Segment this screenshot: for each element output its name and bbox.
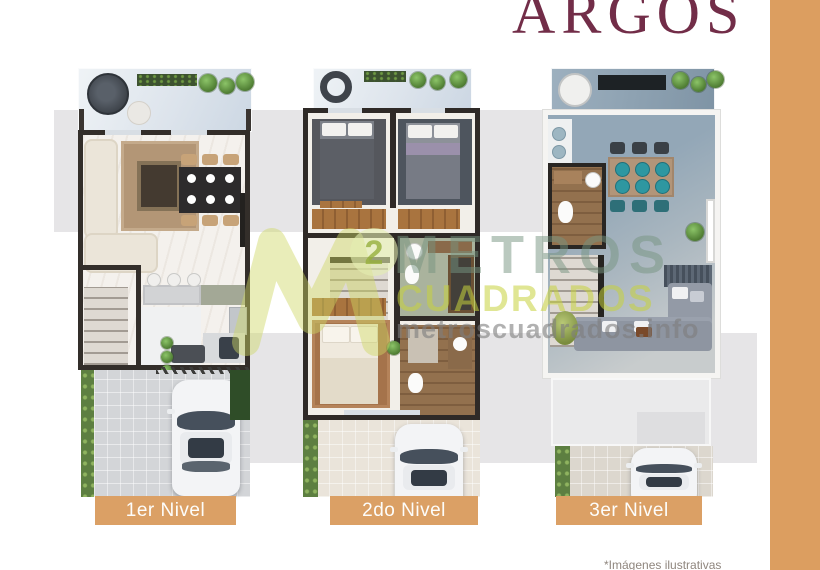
flyer-canvas: 2 METROS CUADRADOS metroscuadrados.info … <box>0 0 820 570</box>
potted-plant <box>199 74 217 92</box>
plate <box>187 195 196 204</box>
dining-chair <box>181 215 197 226</box>
potted-plant <box>691 77 706 92</box>
pillow <box>408 125 432 138</box>
media-wall <box>240 193 245 247</box>
dining-chair <box>223 215 239 226</box>
vanity <box>554 171 582 184</box>
chair <box>610 200 625 212</box>
project-title: ARGOS <box>512 0 748 48</box>
plate <box>615 162 630 177</box>
car-sunroof <box>411 470 448 486</box>
balcony-strip <box>313 68 472 110</box>
car-windshield <box>177 411 234 430</box>
car-mirror <box>460 447 468 452</box>
plate <box>206 174 215 183</box>
stool <box>147 273 161 287</box>
shower-mat <box>408 329 438 363</box>
master-bed <box>320 324 378 404</box>
plate <box>187 174 196 183</box>
serving-tray <box>636 327 652 337</box>
living-floor <box>78 130 250 370</box>
staircase <box>84 287 128 365</box>
chair <box>632 200 647 212</box>
car-sunroof <box>646 477 682 487</box>
blanket-accent <box>406 143 460 155</box>
blanket <box>320 358 378 404</box>
sofa-left <box>84 139 118 239</box>
chair <box>632 142 647 154</box>
tv-console <box>137 161 181 211</box>
patio-table <box>171 345 205 363</box>
potted-plant <box>387 341 401 355</box>
planter-box <box>137 74 197 86</box>
car-rear-window <box>182 461 230 471</box>
roof-terrace <box>543 110 720 378</box>
wall-segment <box>246 109 251 131</box>
kitchen-counter <box>143 285 201 305</box>
duvet <box>406 155 460 199</box>
toilet <box>405 265 419 284</box>
chair <box>654 142 669 154</box>
pillow <box>690 291 704 302</box>
round-table <box>320 71 352 103</box>
toilet <box>408 373 423 393</box>
garden-strip <box>303 420 318 497</box>
pillow <box>672 287 688 299</box>
sink <box>552 145 566 159</box>
car-sunroof <box>188 438 225 458</box>
dining-chair <box>202 154 218 165</box>
driveway <box>94 370 250 497</box>
lower-roof-void <box>551 378 711 446</box>
potted-plant <box>219 78 235 94</box>
car-windshield <box>400 449 457 464</box>
floor-plan-level-2 <box>303 68 480 497</box>
wall-segment <box>79 109 84 131</box>
level-label-1: 1er Nivel <box>95 496 236 525</box>
potted-plant <box>161 337 173 349</box>
sofa-long <box>574 317 712 351</box>
bed-bench <box>320 201 362 208</box>
pillow <box>602 321 617 332</box>
plate <box>225 195 234 204</box>
closet <box>398 209 460 229</box>
plate <box>635 179 650 194</box>
disclaimer-footnote: *Imágenes ilustrativas <box>604 558 721 570</box>
car-mirror <box>390 447 398 452</box>
floor-plan-level-3 <box>543 68 720 497</box>
potted-plant <box>161 351 173 363</box>
potted-plant <box>450 71 467 88</box>
car-mirror <box>167 409 175 414</box>
potted-plant <box>236 73 254 91</box>
plate <box>635 162 650 177</box>
bathroom-1 <box>400 238 475 316</box>
roof-step <box>637 412 705 444</box>
dining-chair <box>202 215 218 226</box>
potted-plant <box>430 75 445 90</box>
round-table <box>87 73 129 115</box>
roof-ledge <box>551 68 715 112</box>
plate <box>225 174 234 183</box>
plate <box>206 195 215 204</box>
outdoor-dining-table <box>608 157 674 197</box>
window <box>105 130 141 135</box>
hedge <box>230 370 250 420</box>
chair <box>654 200 669 212</box>
dining-chair <box>181 154 197 165</box>
shrub <box>552 311 578 345</box>
window <box>171 130 207 135</box>
refrigerator <box>229 307 247 335</box>
potted-plant <box>672 72 689 89</box>
bathroom <box>548 163 606 249</box>
driveway <box>555 446 713 497</box>
sink <box>585 172 601 188</box>
interior-wall <box>83 265 141 270</box>
bed-2 <box>406 123 460 199</box>
plate <box>655 162 670 177</box>
pillow <box>350 326 378 343</box>
bed-1 <box>320 121 374 199</box>
solar-panel <box>598 75 666 90</box>
car-mirror <box>626 463 634 468</box>
driveway <box>303 420 480 497</box>
sink <box>453 337 467 351</box>
level-label-2: 2do Nivel <box>330 496 478 525</box>
window <box>344 410 420 415</box>
window <box>328 108 362 113</box>
planter-box <box>364 71 406 82</box>
interior-wall <box>390 113 396 208</box>
closet <box>312 298 386 316</box>
stool <box>187 273 201 287</box>
sink <box>552 127 566 141</box>
pillow <box>348 123 372 136</box>
potted-plant <box>707 71 724 88</box>
washer <box>219 337 239 359</box>
pillow <box>434 125 458 138</box>
pillow <box>322 326 350 343</box>
bathroom-2 <box>400 325 475 415</box>
duvet <box>320 139 374 199</box>
bedroom-floor <box>303 108 480 420</box>
kitchen-range <box>201 285 245 305</box>
dining-chair <box>223 154 239 165</box>
window <box>411 108 445 113</box>
pillow <box>322 123 346 136</box>
potted-plant <box>686 223 704 241</box>
garden-strip <box>81 370 94 497</box>
chair <box>610 142 625 154</box>
interior-wall <box>400 316 475 321</box>
ottoman <box>127 101 151 125</box>
toilet <box>558 201 573 223</box>
round-lounger <box>558 73 592 107</box>
garden-strip <box>555 446 570 497</box>
sink <box>406 243 423 260</box>
accent-sidebar <box>770 0 820 570</box>
terrace-strip <box>78 68 252 132</box>
vanity <box>428 241 472 253</box>
closet <box>312 209 386 229</box>
stool <box>167 273 181 287</box>
level-label-3: 3er Nivel <box>556 496 702 525</box>
car-mirror <box>694 463 702 468</box>
shower <box>448 255 474 313</box>
planter-ledge <box>706 199 715 263</box>
potted-plant <box>410 72 426 88</box>
dining-table <box>179 167 241 213</box>
car-windshield <box>636 464 691 473</box>
plate <box>615 179 630 194</box>
plate <box>655 179 670 194</box>
floor-plan-level-1 <box>78 68 250 497</box>
